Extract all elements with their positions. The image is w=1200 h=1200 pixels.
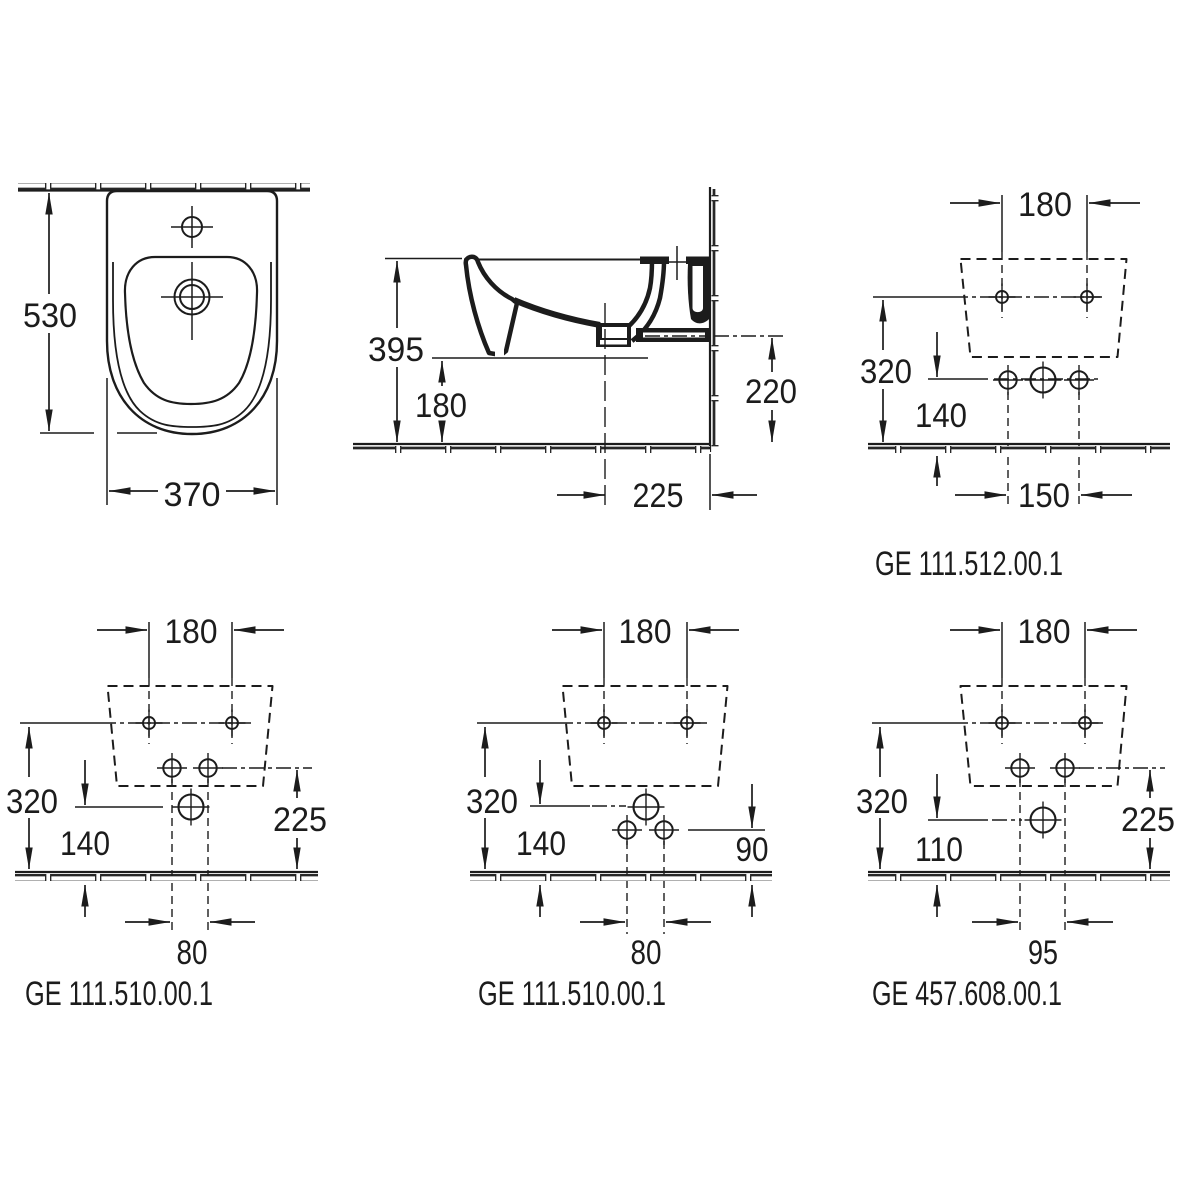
dim-connection-height-225: 225: [273, 801, 327, 839]
dim-drain-height-110: 110: [915, 831, 963, 869]
dim-outlet-220: 220: [745, 373, 797, 411]
dim-hole-spacing-180: 180: [1018, 613, 1071, 651]
wall-hatch: [18, 183, 310, 191]
dim-hole-spacing-180: 180: [1018, 186, 1072, 224]
dim-connection-height-90: 90: [736, 831, 769, 869]
dim-fixing-height-320: 320: [466, 783, 518, 821]
dim-connection-height-140: 140: [915, 397, 967, 435]
dim-fixing-height-320: 320: [6, 783, 58, 821]
product-code-510-a: GE 111.510.00.1: [25, 975, 213, 1013]
dim-fixing-height-320: 320: [856, 783, 908, 821]
page-background: [0, 0, 1200, 1200]
dim-drain-wall-225: 225: [633, 477, 684, 515]
dim-underside-180: 180: [415, 387, 467, 425]
dim-connection-spacing-80: 80: [177, 934, 208, 972]
dim-depth-530: 530: [23, 297, 77, 335]
dim-width-370: 370: [164, 476, 221, 514]
dim-connection-spacing-80: 80: [631, 934, 662, 972]
technical-drawing-page: 530 370: [0, 0, 1200, 1200]
dim-connection-spacing-150: 150: [1018, 477, 1070, 515]
product-code-510-b: GE 111.510.00.1: [478, 975, 666, 1013]
bidet-dimension-diagram: 530 370: [0, 0, 1200, 1200]
dim-hole-spacing-180: 180: [619, 613, 672, 651]
dim-hole-spacing-180: 180: [165, 613, 218, 651]
dim-drain-height-140: 140: [516, 825, 566, 863]
product-code-512: GE 111.512.00.1: [875, 545, 1063, 583]
dim-connection-height-225: 225: [1121, 801, 1175, 839]
dim-drain-height-140: 140: [60, 825, 110, 863]
dim-connection-spacing-95: 95: [1028, 934, 1058, 972]
dim-height-395: 395: [368, 331, 424, 369]
product-code-457: GE 457.608.00.1: [872, 975, 1062, 1013]
dim-fixing-height-320: 320: [860, 353, 912, 391]
